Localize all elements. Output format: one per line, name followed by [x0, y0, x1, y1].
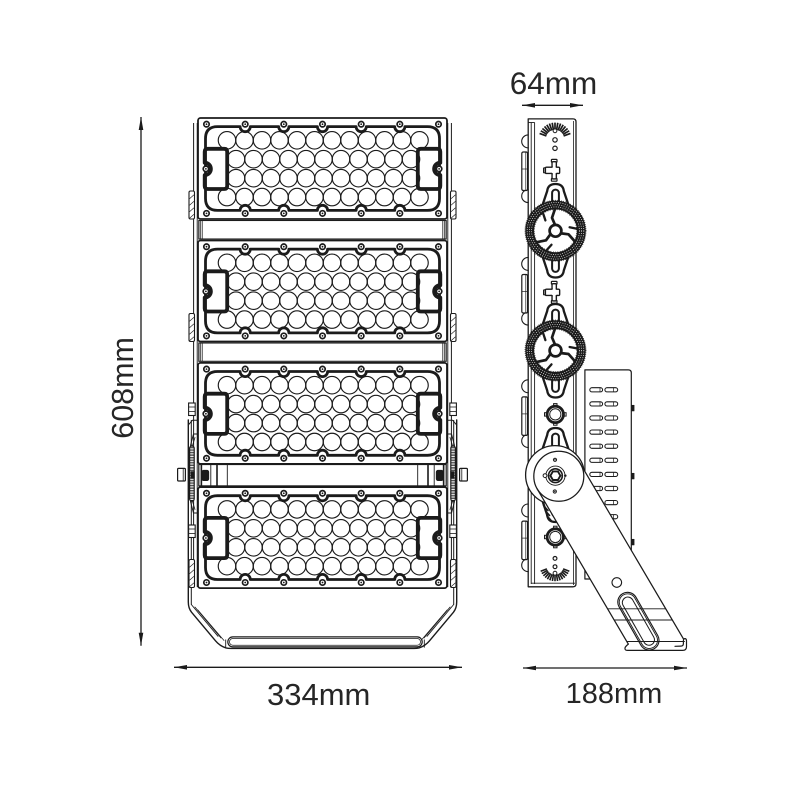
svg-text:188mm: 188mm	[566, 678, 663, 710]
svg-text:334mm: 334mm	[267, 677, 370, 712]
svg-text:64mm: 64mm	[510, 65, 598, 101]
svg-text:608mm: 608mm	[106, 337, 140, 439]
